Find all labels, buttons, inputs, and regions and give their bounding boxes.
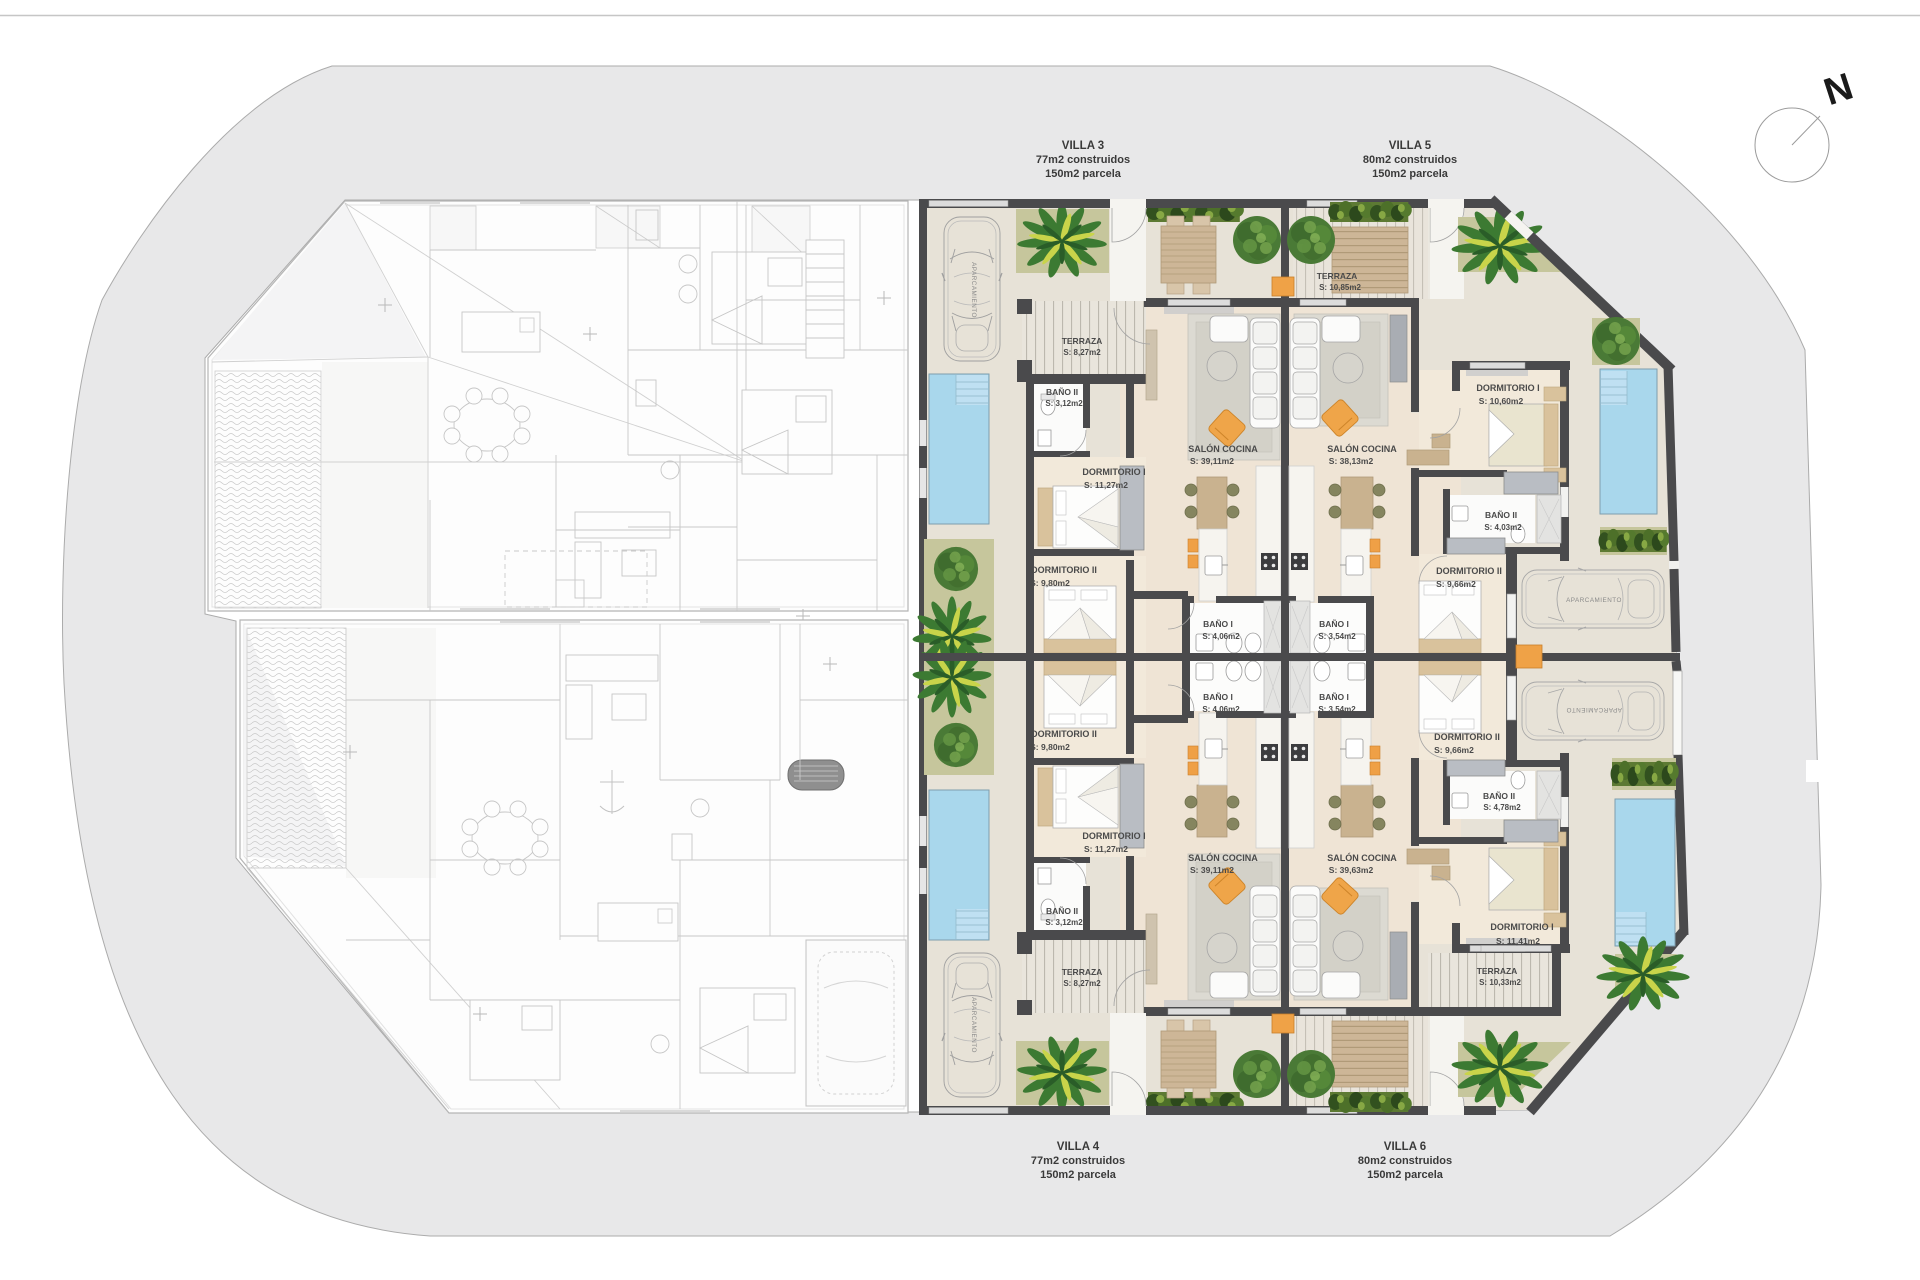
svg-text:VILLA 3: VILLA 3 xyxy=(1062,140,1104,152)
svg-text:TERRAZA: TERRAZA xyxy=(1317,271,1358,281)
svg-text:APARCAMIENTO: APARCAMIENTO xyxy=(970,997,977,1053)
svg-text:S: 4,03m2: S: 4,03m2 xyxy=(1484,523,1522,532)
svg-text:S: 10,85m2: S: 10,85m2 xyxy=(1319,283,1361,292)
svg-text:SALÓN COCINA: SALÓN COCINA xyxy=(1188,443,1258,454)
svg-text:150m2 parcela: 150m2 parcela xyxy=(1367,1169,1444,1181)
svg-text:S: 3,54m2: S: 3,54m2 xyxy=(1318,705,1356,714)
svg-text:S: 8,27m2: S: 8,27m2 xyxy=(1063,979,1101,988)
svg-text:DORMITORIO I: DORMITORIO I xyxy=(1490,922,1553,932)
svg-text:S: 9,80m2: S: 9,80m2 xyxy=(1030,742,1070,752)
svg-text:DORMITORIO II: DORMITORIO II xyxy=(1031,729,1097,739)
svg-text:150m2 parcela: 150m2 parcela xyxy=(1045,168,1122,180)
svg-text:S: 39,11m2: S: 39,11m2 xyxy=(1190,456,1234,466)
svg-text:S: 38,13m2: S: 38,13m2 xyxy=(1329,456,1374,466)
svg-text:S: 39,63m2: S: 39,63m2 xyxy=(1329,865,1374,875)
svg-text:S: 11,27m2: S: 11,27m2 xyxy=(1084,844,1128,854)
svg-text:S: 4,78m2: S: 4,78m2 xyxy=(1483,803,1521,812)
svg-text:150m2 parcela: 150m2 parcela xyxy=(1372,168,1449,180)
svg-text:BAÑO II: BAÑO II xyxy=(1483,791,1515,801)
svg-text:BAÑO II: BAÑO II xyxy=(1485,510,1517,520)
svg-text:APARCAMIENTO: APARCAMIENTO xyxy=(1566,597,1622,604)
svg-text:S: 3,54m2: S: 3,54m2 xyxy=(1318,632,1356,641)
svg-text:TERRAZA: TERRAZA xyxy=(1062,336,1103,346)
svg-text:BAÑO I: BAÑO I xyxy=(1319,619,1349,629)
svg-text:DORMITORIO I: DORMITORIO I xyxy=(1082,467,1145,477)
svg-text:APARCAMIENTO: APARCAMIENTO xyxy=(1566,706,1622,713)
svg-text:DORMITORIO I: DORMITORIO I xyxy=(1476,383,1539,393)
svg-text:S: 8,27m2: S: 8,27m2 xyxy=(1063,348,1101,357)
svg-text:S: 9,66m2: S: 9,66m2 xyxy=(1436,579,1476,589)
svg-text:BAÑO II: BAÑO II xyxy=(1046,387,1078,397)
svg-text:S: 39,11m2: S: 39,11m2 xyxy=(1190,865,1234,875)
svg-text:VILLA 5: VILLA 5 xyxy=(1389,140,1432,152)
svg-text:APARCAMIENTO: APARCAMIENTO xyxy=(970,262,977,318)
svg-text:S: 11,41m2: S: 11,41m2 xyxy=(1496,936,1540,946)
svg-text:DORMITORIO II: DORMITORIO II xyxy=(1434,732,1500,742)
svg-text:SALÓN COCINA: SALÓN COCINA xyxy=(1188,852,1258,863)
svg-text:S: 3,12m2: S: 3,12m2 xyxy=(1045,399,1083,408)
svg-text:SALÓN COCINA: SALÓN COCINA xyxy=(1327,443,1397,454)
svg-text:BAÑO I: BAÑO I xyxy=(1319,692,1349,702)
svg-text:S: 11,27m2: S: 11,27m2 xyxy=(1084,480,1128,490)
svg-text:S: 10,33m2: S: 10,33m2 xyxy=(1479,978,1521,987)
svg-text:77m2 construidos: 77m2 construidos xyxy=(1031,1155,1125,1167)
svg-text:VILLA 6: VILLA 6 xyxy=(1384,1141,1426,1153)
svg-text:S: 9,66m2: S: 9,66m2 xyxy=(1434,745,1474,755)
svg-text:BAÑO I: BAÑO I xyxy=(1203,619,1233,629)
svg-text:TERRAZA: TERRAZA xyxy=(1477,966,1518,976)
svg-text:S: 3,12m2: S: 3,12m2 xyxy=(1045,918,1083,927)
svg-text:VILLA 4: VILLA 4 xyxy=(1057,1141,1100,1153)
svg-text:80m2 construidos: 80m2 construidos xyxy=(1363,154,1457,166)
svg-text:S: 4,06m2: S: 4,06m2 xyxy=(1202,705,1240,714)
svg-text:80m2 construidos: 80m2 construidos xyxy=(1358,1155,1452,1167)
svg-text:S: 9,80m2: S: 9,80m2 xyxy=(1030,578,1070,588)
svg-text:DORMITORIO II: DORMITORIO II xyxy=(1436,566,1502,576)
svg-text:DORMITORIO II: DORMITORIO II xyxy=(1031,565,1097,575)
svg-text:SALÓN COCINA: SALÓN COCINA xyxy=(1327,852,1397,863)
svg-text:TERRAZA: TERRAZA xyxy=(1062,967,1103,977)
svg-text:DORMITORIO I: DORMITORIO I xyxy=(1082,831,1145,841)
svg-text:S: 10,60m2: S: 10,60m2 xyxy=(1479,396,1524,406)
svg-text:150m2 parcela: 150m2 parcela xyxy=(1040,1169,1117,1181)
svg-text:BAÑO II: BAÑO II xyxy=(1046,906,1078,916)
svg-text:S: 4,06m2: S: 4,06m2 xyxy=(1202,632,1240,641)
svg-text:BAÑO I: BAÑO I xyxy=(1203,692,1233,702)
svg-text:77m2 construidos: 77m2 construidos xyxy=(1036,154,1130,166)
